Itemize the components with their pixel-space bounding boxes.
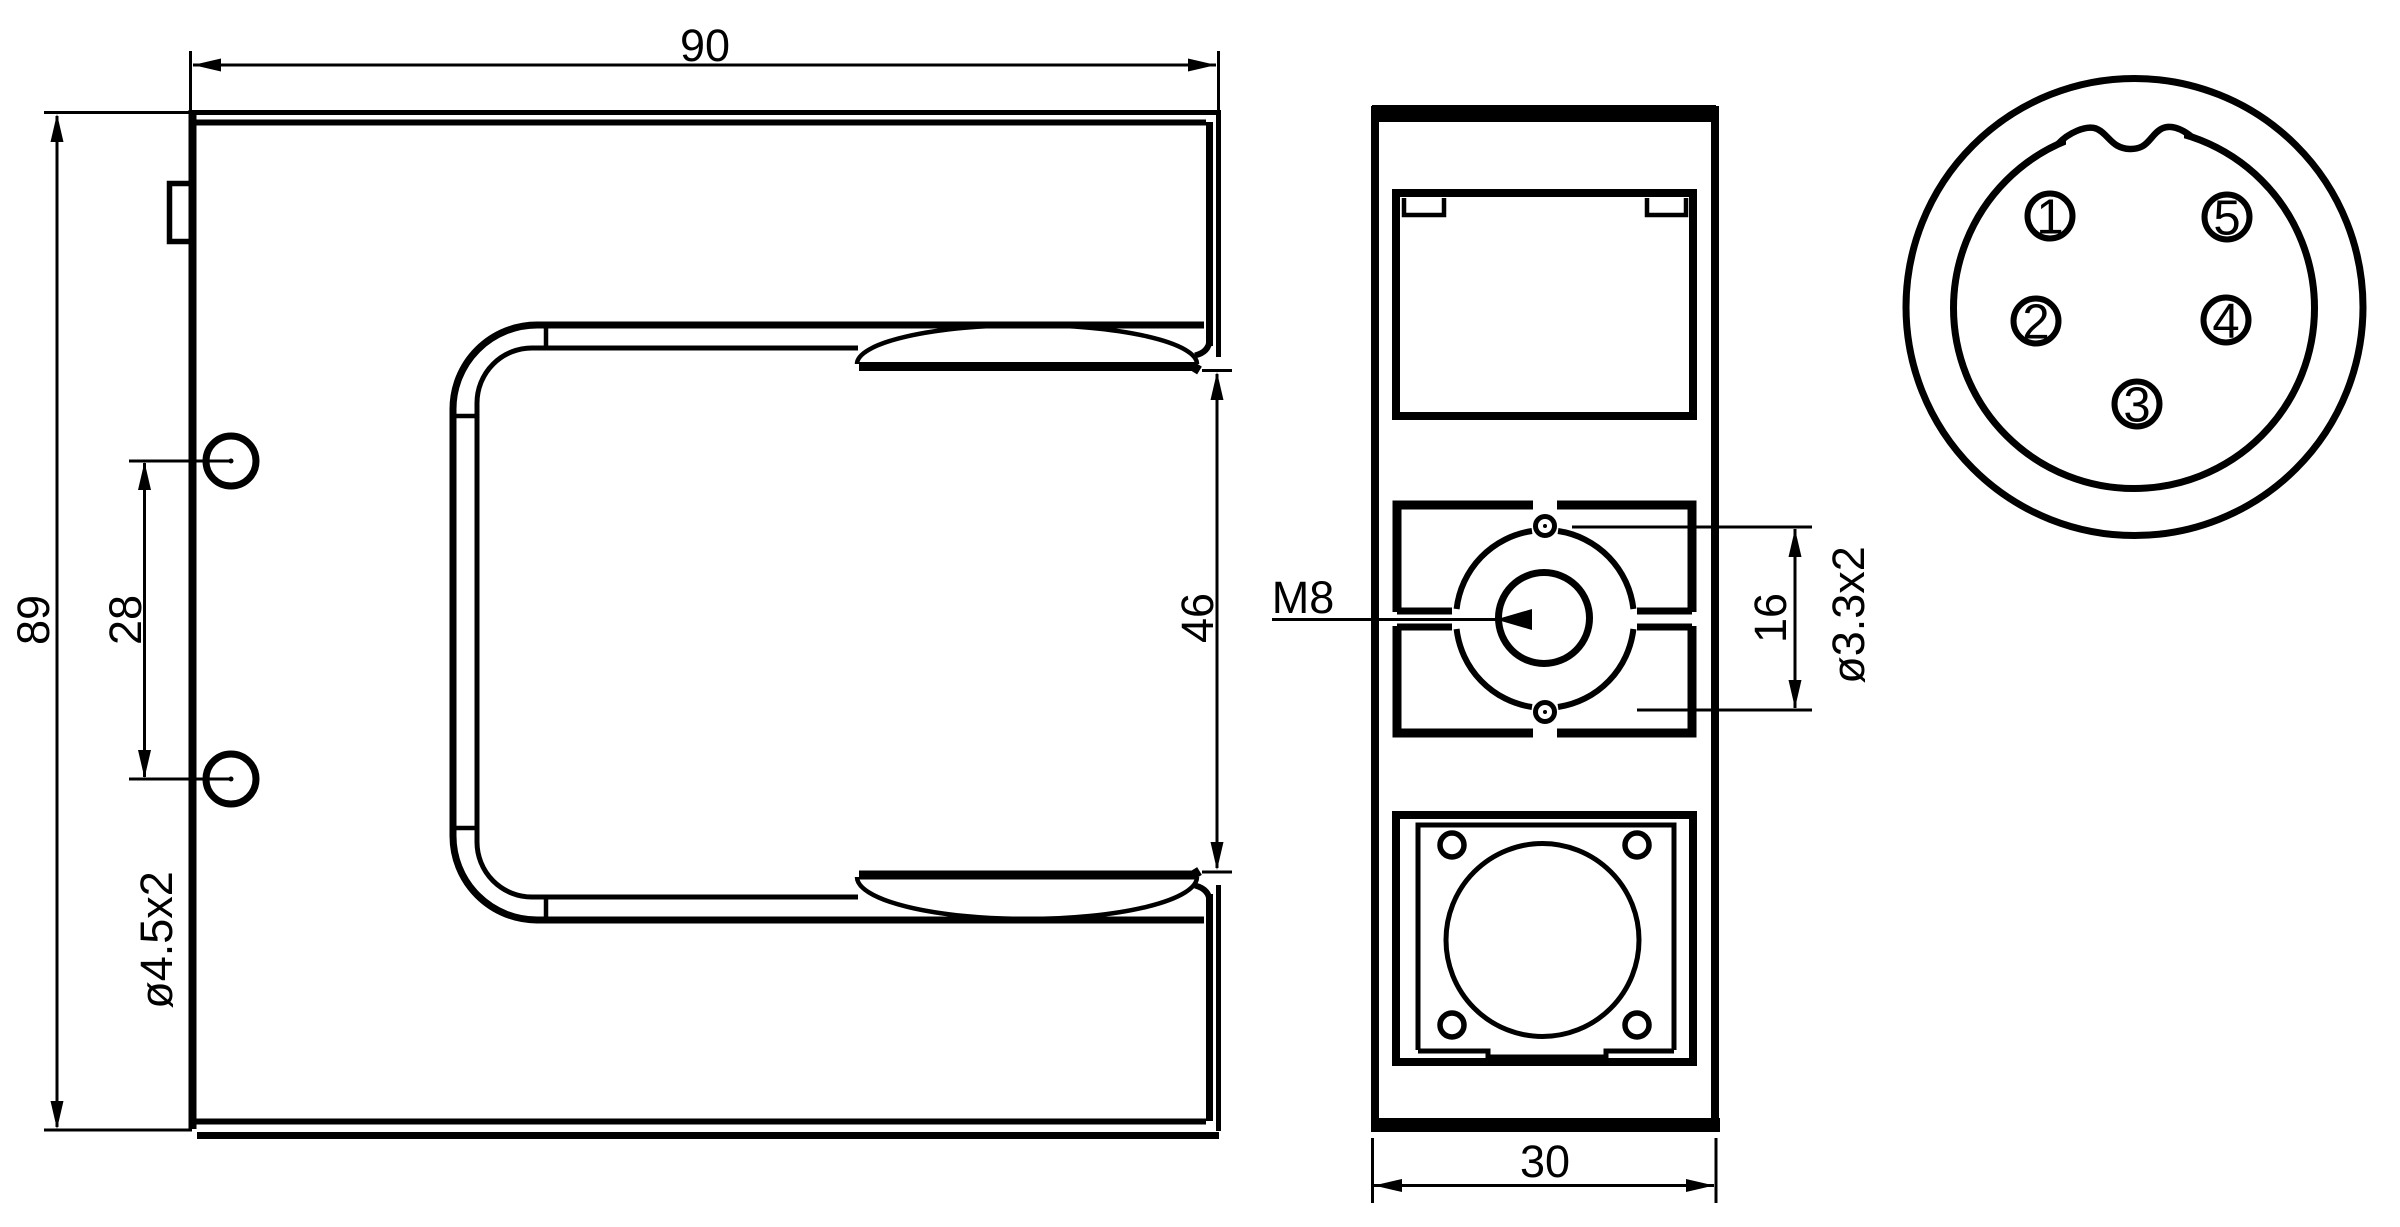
- svg-text:90: 90: [680, 20, 730, 71]
- svg-text:46: 46: [1172, 593, 1223, 643]
- svg-text:30: 30: [1520, 1136, 1570, 1187]
- svg-text:3: 3: [2123, 379, 2150, 433]
- svg-text:M8: M8: [1272, 572, 1335, 623]
- svg-text:2: 2: [2022, 296, 2049, 350]
- svg-text:28: 28: [100, 595, 151, 645]
- svg-text:89: 89: [8, 595, 59, 645]
- svg-text:4: 4: [2212, 295, 2239, 349]
- svg-text:5: 5: [2213, 192, 2240, 246]
- svg-text:16: 16: [1745, 593, 1796, 643]
- svg-text:ø3.3x2: ø3.3x2: [1823, 546, 1874, 684]
- svg-text:ø4.5x2: ø4.5x2: [131, 871, 182, 1009]
- svg-text:1: 1: [2036, 191, 2063, 245]
